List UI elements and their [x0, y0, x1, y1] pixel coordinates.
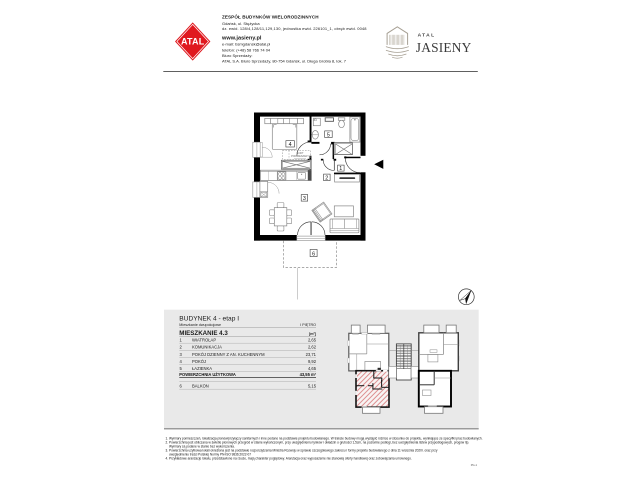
svg-text:POWIERZCHNIA UŻYTKOWA: POWIERZCHNIA UŻYTKOWA	[179, 372, 236, 377]
svg-text:6: 6	[312, 251, 315, 257]
svg-text:telefon: (+48) 58 766 74 04: telefon: (+48) 58 766 74 04	[222, 47, 271, 52]
svg-text:PODWIESZANY: PODWIESZANY	[291, 155, 309, 158]
svg-text:ATAL: ATAL	[181, 37, 205, 47]
svg-text:e-mail: bsmgdansk@atal.pl: e-mail: bsmgdansk@atal.pl	[222, 42, 270, 47]
svg-text:JASIENY: JASIENY	[416, 40, 472, 55]
svg-text:9,92: 9,92	[308, 359, 317, 364]
svg-text:BUDYNEK 4 - etap I: BUDYNEK 4 - etap I	[179, 316, 239, 323]
svg-text:2,62: 2,62	[308, 345, 317, 350]
svg-text:1: 1	[339, 166, 342, 172]
svg-text:4. Przykładowe aranżacje loka: 4. Przykładowe aranżacje lokalu, przedst…	[166, 457, 412, 461]
svg-text:POKÓJ: POKÓJ	[192, 359, 206, 364]
svg-text:dz. ewid. 128/4,128/11,129,130: dz. ewid. 128/4,128/11,129,130, jednostk…	[222, 26, 367, 31]
svg-text:WIATROŁAP: WIATROŁAP	[192, 338, 216, 343]
svg-text:43,55 m²: 43,55 m²	[300, 372, 317, 377]
svg-text:2,65: 2,65	[308, 338, 317, 343]
svg-text:23,71: 23,71	[306, 352, 317, 357]
svg-text:[m²]: [m²]	[309, 332, 317, 336]
svg-text:PG-1: PG-1	[471, 463, 478, 467]
svg-text:ZESPÓŁ BUDYNKÓW WIELORODZINNYC: ZESPÓŁ BUDYNKÓW WIELORODZINNYCH	[222, 12, 319, 19]
svg-text:Gdańsk, ul. Stężycka: Gdańsk, ul. Stężycka	[222, 21, 260, 26]
svg-text:Mieszkanie dwupokojowe: Mieszkanie dwupokojowe	[179, 323, 221, 327]
svg-text:KOMUNIKACJA: KOMUNIKACJA	[192, 345, 222, 350]
svg-text:I PIĘTRO: I PIĘTRO	[300, 323, 316, 327]
svg-text:5: 5	[327, 132, 330, 138]
svg-text:3: 3	[303, 196, 306, 202]
svg-text:ATAL: ATAL	[418, 33, 436, 39]
svg-text:4: 4	[289, 142, 292, 148]
svg-text:5,15: 5,15	[308, 383, 317, 388]
svg-text:ATAL S.A. Biuro Sprzedaży, 80-: ATAL S.A. Biuro Sprzedaży, 80-754 Gdańsk…	[222, 58, 347, 63]
svg-text:ŁAZIENKA: ŁAZIENKA	[192, 366, 212, 371]
svg-text:BALKON: BALKON	[192, 383, 209, 388]
svg-text:4,65: 4,65	[308, 366, 317, 371]
svg-text:POKÓJ DZIENNY Z AN. KUCHENNYM: POKÓJ DZIENNY Z AN. KUCHENNYM	[192, 352, 265, 357]
svg-text:MIESZKANIE 4.3: MIESZKANIE 4.3	[179, 330, 228, 337]
svg-text:www.jasieny.pl: www.jasieny.pl	[221, 36, 262, 42]
svg-text:2: 2	[325, 176, 328, 182]
